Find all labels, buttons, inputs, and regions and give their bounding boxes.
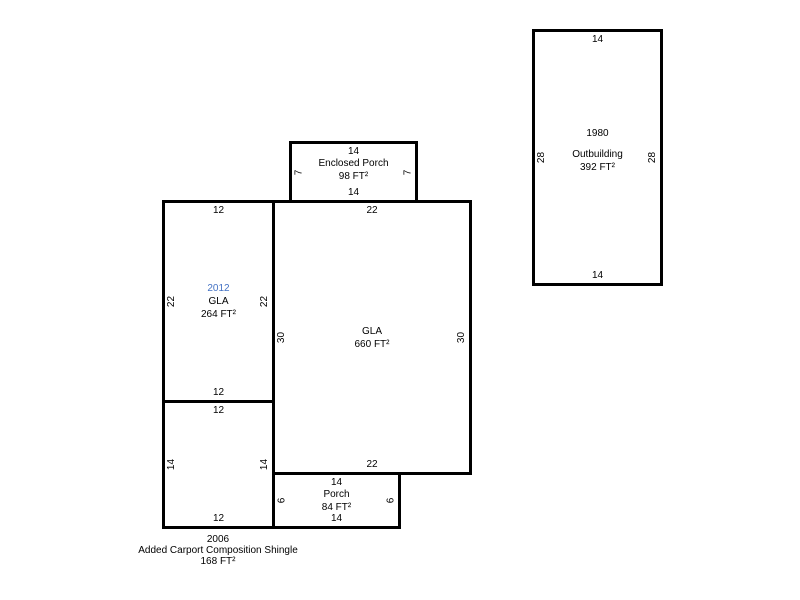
carport-year-label: 2006 bbox=[68, 534, 368, 545]
outbuilding-dim-right-value: 28 bbox=[648, 152, 659, 163]
porch-dim-right: 6 bbox=[384, 475, 398, 526]
carport-dim-right-value: 14 bbox=[260, 459, 271, 470]
enclosed-porch-area-label: 98 FT² bbox=[339, 170, 368, 183]
porch-dim-left: 6 bbox=[275, 475, 289, 526]
porch-name-label: Porch bbox=[323, 488, 349, 501]
outbuilding-label: 1980 Outbuilding 392 FT² bbox=[535, 32, 660, 283]
addition-2012-dim-top: 12 bbox=[165, 205, 272, 216]
main-gla-dim-top: 22 bbox=[275, 205, 469, 216]
addition-2012-area-label: 264 FT² bbox=[201, 308, 236, 321]
main-gla-label: GLA 660 FT² bbox=[275, 203, 469, 472]
enclosed-porch-dim-left-value: 7 bbox=[294, 169, 305, 175]
addition-2012-shape: 12 12 22 22 2012 GLA 264 FT² bbox=[162, 200, 275, 403]
carport-name-label: Added Carport Composition Shingle bbox=[68, 545, 368, 556]
enclosed-porch-dim-left: 7 bbox=[292, 144, 306, 200]
porch-area-label: 84 FT² bbox=[322, 501, 351, 514]
main-gla-dim-right-value: 30 bbox=[457, 332, 468, 343]
porch-shape: 14 14 6 6 Porch 84 FT² bbox=[272, 472, 401, 529]
addition-2012-label: 2012 GLA 264 FT² bbox=[165, 203, 272, 400]
enclosed-porch-dim-top: 14 bbox=[292, 146, 415, 157]
enclosed-porch-dim-bottom: 14 bbox=[292, 187, 415, 198]
carport-area-label: 168 FT² bbox=[68, 556, 368, 567]
enclosed-porch-dim-right: 7 bbox=[401, 144, 415, 200]
outbuilding-shape: 14 14 28 28 1980 Outbuilding 392 FT² bbox=[532, 29, 663, 286]
main-gla-dim-left-value: 30 bbox=[277, 332, 288, 343]
outbuilding-dim-top: 14 bbox=[535, 34, 660, 45]
outbuilding-dim-left-value: 28 bbox=[537, 152, 548, 163]
porch-dim-bottom: 14 bbox=[275, 513, 398, 524]
addition-2012-name-label: GLA bbox=[208, 295, 228, 308]
main-gla-dim-right: 30 bbox=[455, 203, 469, 472]
carport-dim-right: 14 bbox=[258, 403, 272, 526]
sketch-canvas: 14 14 28 28 1980 Outbuilding 392 FT² 14 … bbox=[0, 0, 800, 600]
carport-dim-top: 12 bbox=[165, 405, 272, 416]
carport-caption: 2006 Added Carport Composition Shingle 1… bbox=[68, 534, 368, 567]
outbuilding-year-label: 1980 bbox=[586, 127, 608, 140]
outbuilding-dim-left: 28 bbox=[535, 32, 549, 283]
carport-shape: 12 12 14 14 bbox=[162, 400, 275, 529]
porch-dim-right-value: 6 bbox=[386, 498, 397, 504]
enclosed-porch-name-label: Enclosed Porch bbox=[318, 157, 388, 170]
main-gla-name-label: GLA bbox=[362, 325, 382, 338]
carport-dim-left-value: 14 bbox=[167, 459, 178, 470]
addition-2012-year-label: 2012 bbox=[207, 282, 229, 295]
outbuilding-area-label: 392 FT² bbox=[580, 161, 615, 174]
outbuilding-dim-right: 28 bbox=[646, 32, 660, 283]
main-gla-dim-bottom: 22 bbox=[275, 459, 469, 470]
outbuilding-dim-bottom: 14 bbox=[535, 270, 660, 281]
porch-dim-top: 14 bbox=[275, 477, 398, 488]
carport-dim-bottom: 12 bbox=[165, 513, 272, 524]
addition-2012-dim-bottom: 12 bbox=[165, 387, 272, 398]
main-gla-shape: 22 22 30 30 GLA 660 FT² bbox=[272, 200, 472, 475]
addition-2012-dim-right: 22 bbox=[258, 203, 272, 400]
addition-2012-dim-left: 22 bbox=[165, 203, 179, 400]
main-gla-area-label: 660 FT² bbox=[354, 338, 389, 351]
addition-2012-dim-right-value: 22 bbox=[260, 296, 271, 307]
main-gla-dim-left: 30 bbox=[275, 203, 289, 472]
enclosed-porch-dim-right-value: 7 bbox=[403, 169, 414, 175]
addition-2012-dim-left-value: 22 bbox=[167, 296, 178, 307]
enclosed-porch-shape: 14 14 7 7 Enclosed Porch 98 FT² bbox=[289, 141, 418, 203]
carport-dim-left: 14 bbox=[165, 403, 179, 526]
outbuilding-name-label: Outbuilding bbox=[572, 148, 623, 161]
porch-dim-left-value: 6 bbox=[277, 498, 288, 504]
